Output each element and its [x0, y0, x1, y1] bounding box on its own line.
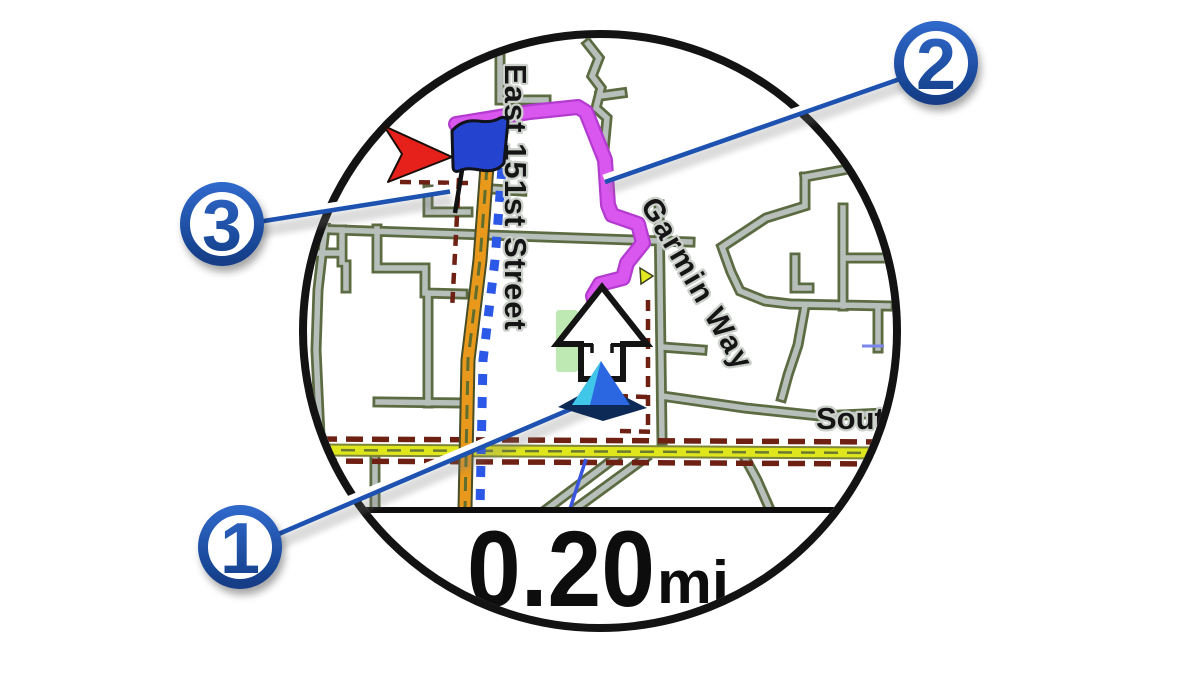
- figure-watch-navigation: East 151st Street Garmin Way Sout 0.20 m…: [0, 0, 1200, 676]
- callout-2: 2: [899, 25, 973, 105]
- street-label-east-151st: East 151st Street: [498, 64, 533, 331]
- callout-1: 1: [203, 509, 277, 589]
- destination-flag-icon: [452, 117, 508, 171]
- callout-2-number: 2: [916, 25, 956, 105]
- street-label-south: Sout: [816, 401, 885, 436]
- callout-1-number: 1: [220, 509, 260, 589]
- callout-3: 3: [185, 186, 259, 266]
- illustration-canvas: East 151st Street Garmin Way Sout 0.20 m…: [0, 0, 1200, 676]
- callout-3-number: 3: [202, 186, 242, 266]
